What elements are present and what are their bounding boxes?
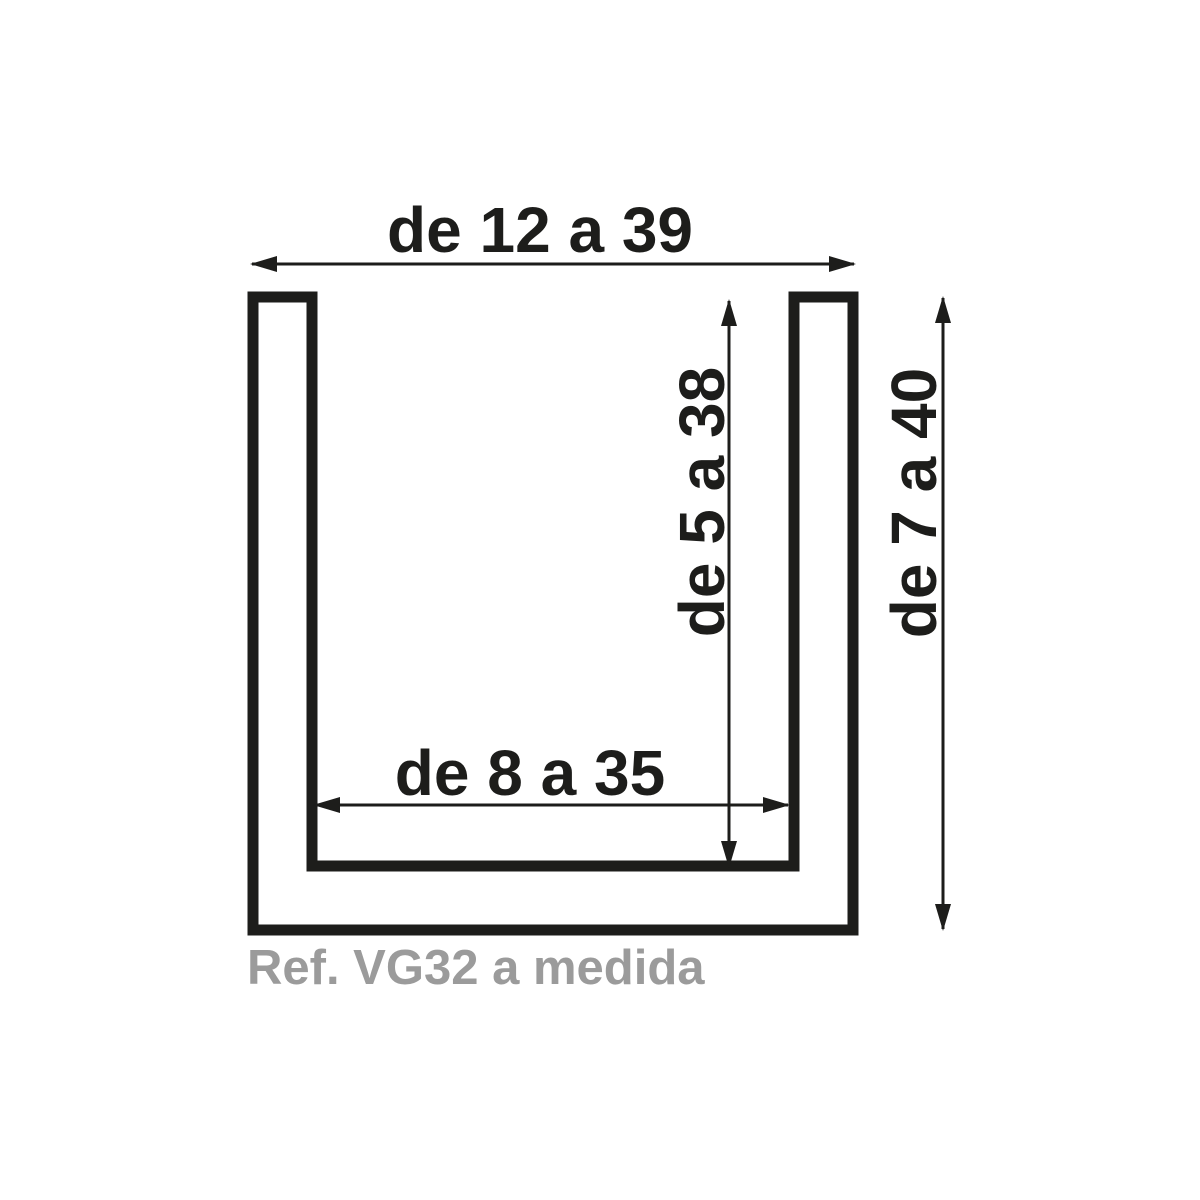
dimension-outer-height: de 7 a 40 bbox=[878, 296, 951, 931]
u-channel-profile-outline bbox=[253, 297, 853, 930]
arrowhead-right-icon bbox=[763, 797, 790, 813]
u-channel-diagram: de 12 a 39 de 5 a 38 de 7 a 40 de 8 a 35… bbox=[0, 0, 1200, 1200]
arrowhead-up-icon bbox=[935, 296, 951, 323]
diagram-page: de 12 a 39 de 5 a 38 de 7 a 40 de 8 a 35… bbox=[0, 0, 1200, 1200]
arrowhead-down-icon bbox=[935, 904, 951, 931]
arrowhead-up-icon bbox=[721, 299, 737, 326]
dimension-outer-width: de 12 a 39 bbox=[250, 194, 856, 272]
arrowhead-left-icon bbox=[250, 256, 277, 272]
dimension-inner-width: de 8 a 35 bbox=[313, 737, 790, 813]
arrowhead-right-icon bbox=[829, 256, 856, 272]
dimension-inner-height-label: de 5 a 38 bbox=[666, 367, 738, 637]
dimension-inner-width-label: de 8 a 35 bbox=[395, 737, 665, 809]
dimension-outer-height-label: de 7 a 40 bbox=[878, 368, 950, 638]
dimension-inner-height: de 5 a 38 bbox=[666, 299, 738, 868]
reference-caption: Ref. VG32 a medida bbox=[247, 941, 705, 995]
dimension-outer-width-label: de 12 a 39 bbox=[387, 194, 693, 266]
